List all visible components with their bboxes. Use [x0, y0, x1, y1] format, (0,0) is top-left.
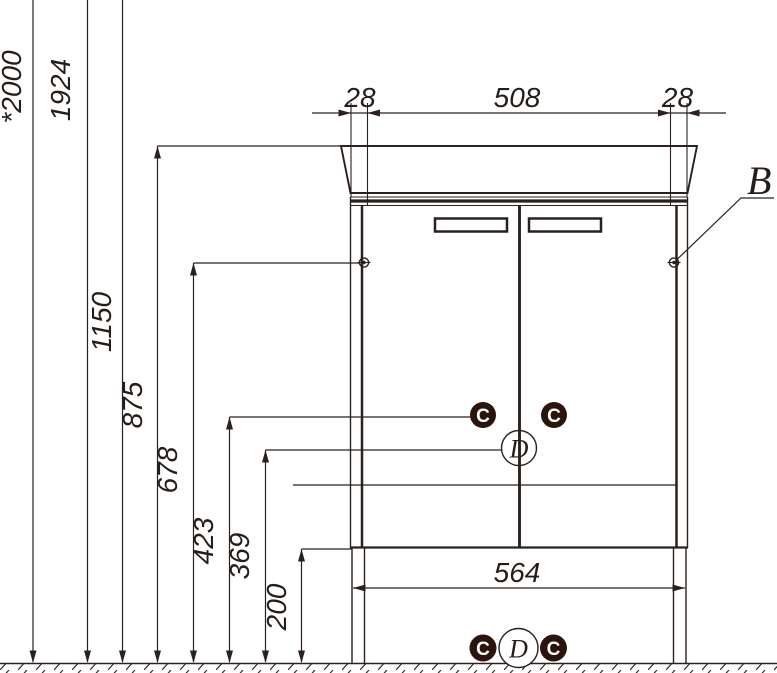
- cabinet-body: [293, 197, 688, 548]
- height-dimension-labels: *2000 1924 1150 875 678 423 369 200: [0, 50, 292, 631]
- dowel-badge-bottom-label: D: [508, 634, 528, 663]
- right-door-handle: [529, 219, 601, 232]
- ground-hatching: [0, 664, 777, 673]
- cam-badge-left-inner: C: [479, 411, 486, 422]
- top-width-dimension: 28 508 28: [312, 82, 726, 205]
- dim-label-564: 564: [494, 557, 541, 588]
- washbasin-outline: [341, 146, 697, 197]
- dim-label-28-right: 28: [661, 82, 694, 113]
- dowel-badge-mid-label: D: [509, 434, 529, 463]
- dim-label-508: 508: [494, 82, 541, 113]
- cam-badge-bottom-left-inner: C: [479, 644, 486, 655]
- callout-b-leader: [677, 198, 774, 260]
- bottom-width-dimension: 564: [353, 557, 685, 592]
- ground-line: [0, 664, 777, 673]
- technical-drawing-page: *2000 1924 1150 875 678 423 369 200 28 5…: [0, 0, 777, 673]
- dim-label-2000: *2000: [0, 50, 27, 124]
- vanity-elevation-drawing: *2000 1924 1150 875 678 423 369 200 28 5…: [0, 0, 777, 673]
- left-door-handle: [435, 219, 507, 232]
- dim-label-200: 200: [261, 583, 292, 631]
- dim-label-678: 678: [152, 446, 183, 493]
- cam-badge-right-inner: C: [550, 411, 557, 422]
- dim-label-28-left: 28: [343, 82, 376, 113]
- callout-b-label: B: [747, 158, 771, 203]
- dim-label-875: 875: [117, 381, 148, 428]
- bottom-fitting-badges: D C C C C: [470, 629, 568, 668]
- dim-label-1924: 1924: [45, 59, 76, 121]
- cam-badge-bottom-right-inner: C: [550, 644, 557, 655]
- dim-label-423: 423: [188, 517, 219, 564]
- dim-label-369: 369: [224, 533, 255, 580]
- dim-label-1150: 1150: [86, 291, 117, 352]
